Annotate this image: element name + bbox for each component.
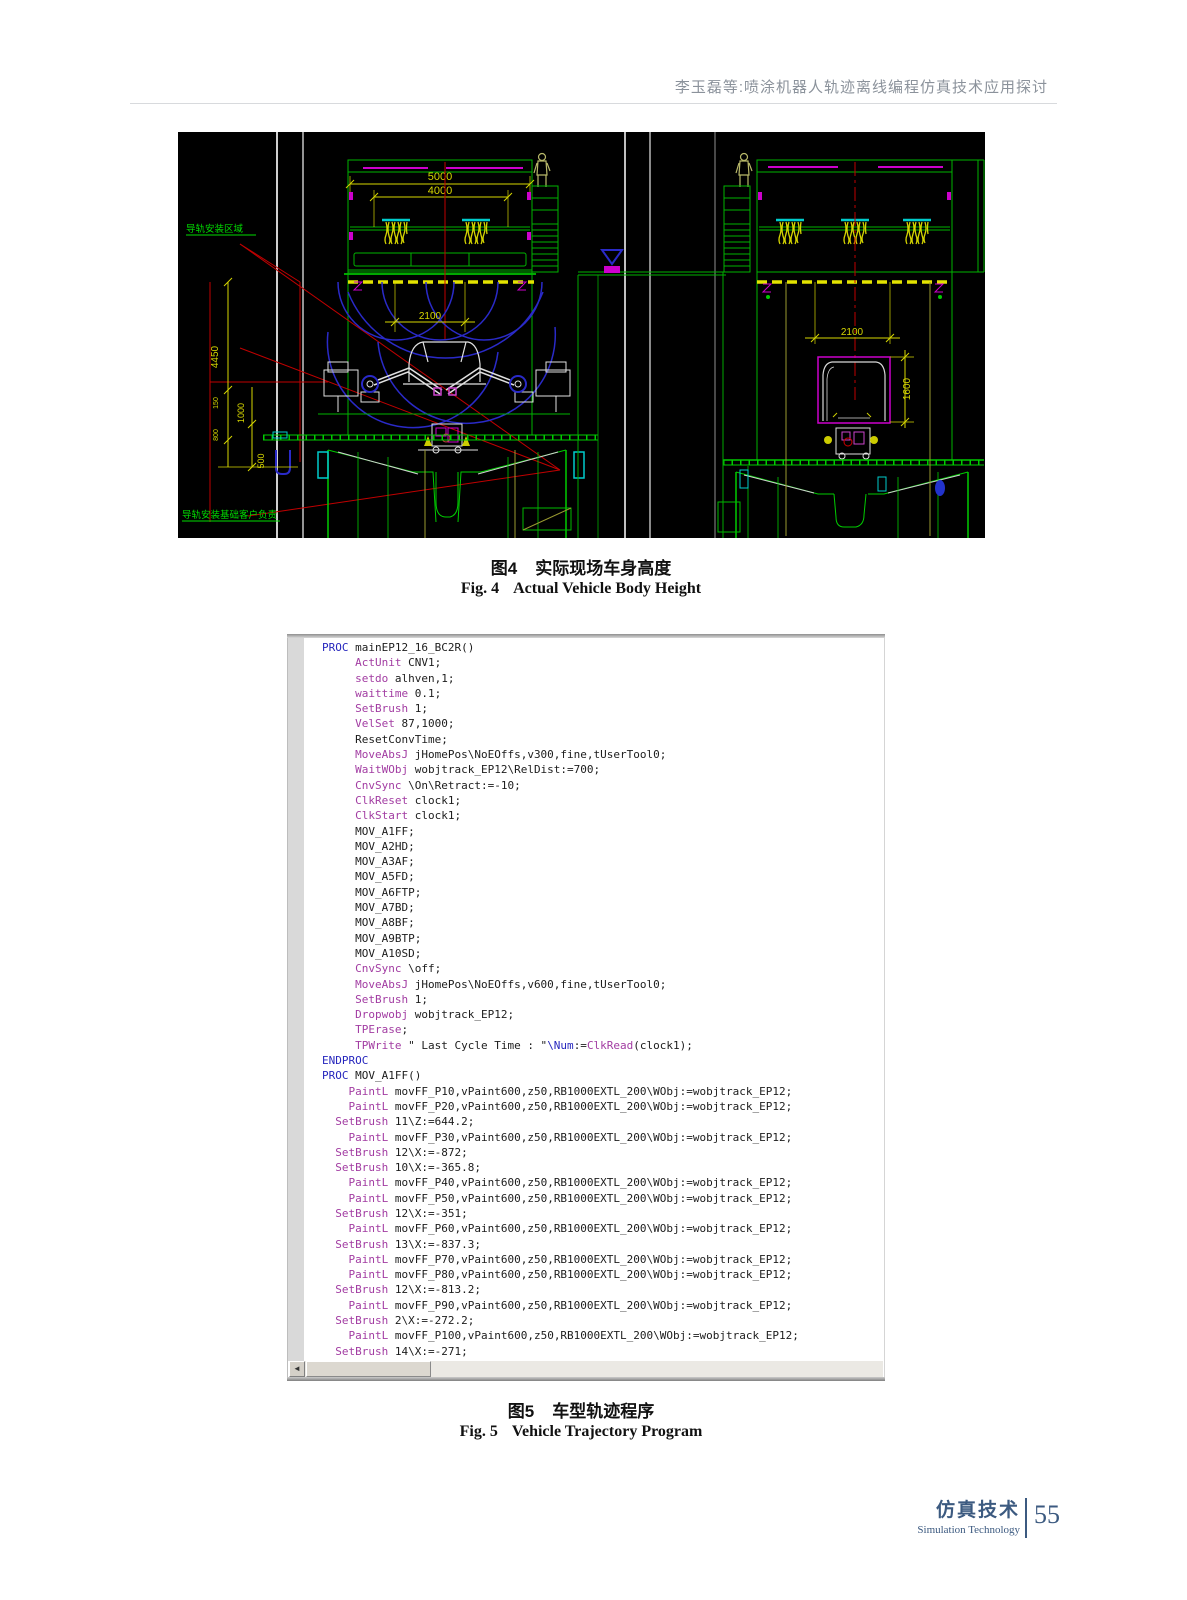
code-line: setdo alhven,1; (288, 671, 884, 686)
code-line: PaintL movFF_P70,vPaint600,z50,RB1000EXT… (288, 1252, 884, 1267)
code-line: PROC MOV_A1FF() (288, 1068, 884, 1083)
scroll-left-arrow-icon: ◄ (293, 1364, 301, 1373)
code-window-top-border (287, 634, 885, 638)
code-line: PaintL movFF_P50,vPaint600,z50,RB1000EXT… (288, 1191, 884, 1206)
code-line: PaintL movFF_P90,vPaint600,z50,RB1000EXT… (288, 1298, 884, 1313)
code-line: TPErase; (288, 1022, 884, 1037)
svg-text:2100: 2100 (419, 311, 442, 322)
code-window-bottom-border (287, 1377, 885, 1381)
code-line: PaintL movFF_P80,vPaint600,z50,RB1000EXT… (288, 1267, 884, 1282)
horizontal-scrollbar: ◄ (289, 1361, 883, 1377)
figure4-label-cn: 图4 (491, 559, 517, 578)
code-line: MoveAbsJ jHomePos\NoEOffs,v300,fine,tUse… (288, 747, 884, 762)
figure4-caption-en: Fig. 4Actual Vehicle Body Height (0, 580, 1162, 598)
code-line: SetBrush 2\X:=-272.2; (288, 1313, 884, 1328)
figure4-title-en: Actual Vehicle Body Height (513, 580, 701, 597)
code-line: SetBrush 1; (288, 992, 884, 1007)
code-line: MOV_A5FD; (288, 869, 884, 884)
code-line: MOV_A2HD; (288, 839, 884, 854)
code-line: waittime 0.1; (288, 686, 884, 701)
code-line: Dropwobj wobjtrack_EP12; (288, 1007, 884, 1022)
code-line: TPWrite " Last Cycle Time : "\Num:=ClkRe… (288, 1038, 884, 1053)
figure4-caption-cn: 图4实际现场车身高度 (0, 554, 1162, 579)
code-line: PaintL movFF_P60,vPaint600,z50,RB1000EXT… (288, 1221, 884, 1236)
code-line: PaintL movFF_P20,vPaint600,z50,RB1000EXT… (288, 1099, 884, 1114)
figure5-code-window: PROC mainEP12_16_BC2R() ActUnit CNV1; se… (287, 634, 885, 1381)
figure5-title-cn: 车型轨迹程序 (552, 1402, 654, 1421)
cad-drawing: 5000 4000 (178, 132, 985, 538)
page-number: 55 (1034, 1500, 1060, 1530)
code-line: PaintL movFF_P40,vPaint600,z50,RB1000EXT… (288, 1175, 884, 1190)
code-line: ResetConvTime; (288, 732, 884, 747)
svg-text:500: 500 (256, 453, 266, 468)
code-line: CnvSync \On\Retract:=-10; (288, 778, 884, 793)
code-line: MOV_A1FF; (288, 824, 884, 839)
code-line: ClkReset clock1; (288, 793, 884, 808)
svg-text:1000: 1000 (236, 403, 246, 423)
svg-text:导轨安装基础客户负责: 导轨安装基础客户负责 (182, 509, 277, 521)
figure4-title-cn: 实际现场车身高度 (535, 559, 671, 578)
journal-name-en: Simulation Technology (917, 1524, 1020, 1536)
code-line: PaintL movFF_P100,vPaint600,z50,RB1000EX… (288, 1328, 884, 1343)
footer-divider (1025, 1498, 1027, 1538)
code-line: ActUnit CNV1; (288, 655, 884, 670)
code-line: SetBrush 12\X:=-351; (288, 1206, 884, 1221)
svg-text:800: 800 (213, 429, 220, 441)
code-line: WaitWObj wobjtrack_EP12\RelDist:=700; (288, 762, 884, 777)
code-line: VelSet 87,1000; (288, 716, 884, 731)
svg-text:2100: 2100 (841, 327, 864, 338)
running-head: 李玉磊等:喷涂机器人轨迹离线编程仿真技术应用探讨 (675, 76, 1048, 97)
code-line: SetBrush 12\X:=-813.2; (288, 1282, 884, 1297)
code-line: ENDPROC (288, 1053, 884, 1068)
scroll-left-button: ◄ (289, 1361, 305, 1377)
svg-text:5000: 5000 (428, 171, 452, 183)
figure5-caption-cn: 图5车型轨迹程序 (0, 1397, 1162, 1422)
paper-page: 李玉磊等:喷涂机器人轨迹离线编程仿真技术应用探讨 (0, 0, 1187, 1600)
code-line: MOV_A6FTP; (288, 885, 884, 900)
footer-journal-block: 仿真技术 Simulation Technology (917, 1495, 1020, 1536)
code-line: SetBrush 12\X:=-872; (288, 1145, 884, 1160)
code-line: ClkStart clock1; (288, 808, 884, 823)
journal-name-cn: 仿真技术 (917, 1495, 1020, 1522)
code-line: SetBrush 14\X:=-271; (288, 1344, 884, 1359)
figure5-label-cn: 图5 (508, 1402, 534, 1421)
code-line: MOV_A7BD; (288, 900, 884, 915)
figure5-title-en: Vehicle Trajectory Program (512, 1423, 702, 1440)
code-line: PROC mainEP12_16_BC2R() (288, 640, 884, 655)
svg-text:导轨安装区域: 导轨安装区域 (186, 223, 244, 235)
code-listing: PROC mainEP12_16_BC2R() ActUnit CNV1; se… (288, 640, 884, 1361)
figure4-cad-image: 5000 4000 (178, 132, 985, 538)
code-line: MoveAbsJ jHomePos\NoEOffs,v600,fine,tUse… (288, 977, 884, 992)
figure4-label-en: Fig. 4 (461, 580, 499, 597)
svg-text:4450: 4450 (210, 345, 221, 368)
svg-text:150: 150 (213, 397, 220, 409)
code-line: PaintL movFF_P30,vPaint600,z50,RB1000EXT… (288, 1130, 884, 1145)
code-line: MOV_A8BF; (288, 915, 884, 930)
code-line: CnvSync \off; (288, 961, 884, 976)
code-line: MOV_A3AF; (288, 854, 884, 869)
code-line: MOV_A9BTP; (288, 931, 884, 946)
scrollbar-thumb (306, 1361, 431, 1377)
svg-text:4000: 4000 (428, 185, 452, 197)
code-line: SetBrush 11\Z:=644.2; (288, 1114, 884, 1129)
header-rule (130, 103, 1057, 104)
svg-text:1600: 1600 (902, 377, 913, 400)
code-line: SetBrush 10\X:=-365.8; (288, 1160, 884, 1175)
figure5-label-en: Fig. 5 (460, 1423, 498, 1440)
cad-background (178, 132, 985, 538)
code-line: MOV_A10SD; (288, 946, 884, 961)
figure5-caption-en: Fig. 5Vehicle Trajectory Program (0, 1423, 1162, 1441)
code-line: SetBrush 1; (288, 701, 884, 716)
code-line: PaintL movFF_P10,vPaint600,z50,RB1000EXT… (288, 1084, 884, 1099)
code-line: SetBrush 13\X:=-837.3; (288, 1237, 884, 1252)
